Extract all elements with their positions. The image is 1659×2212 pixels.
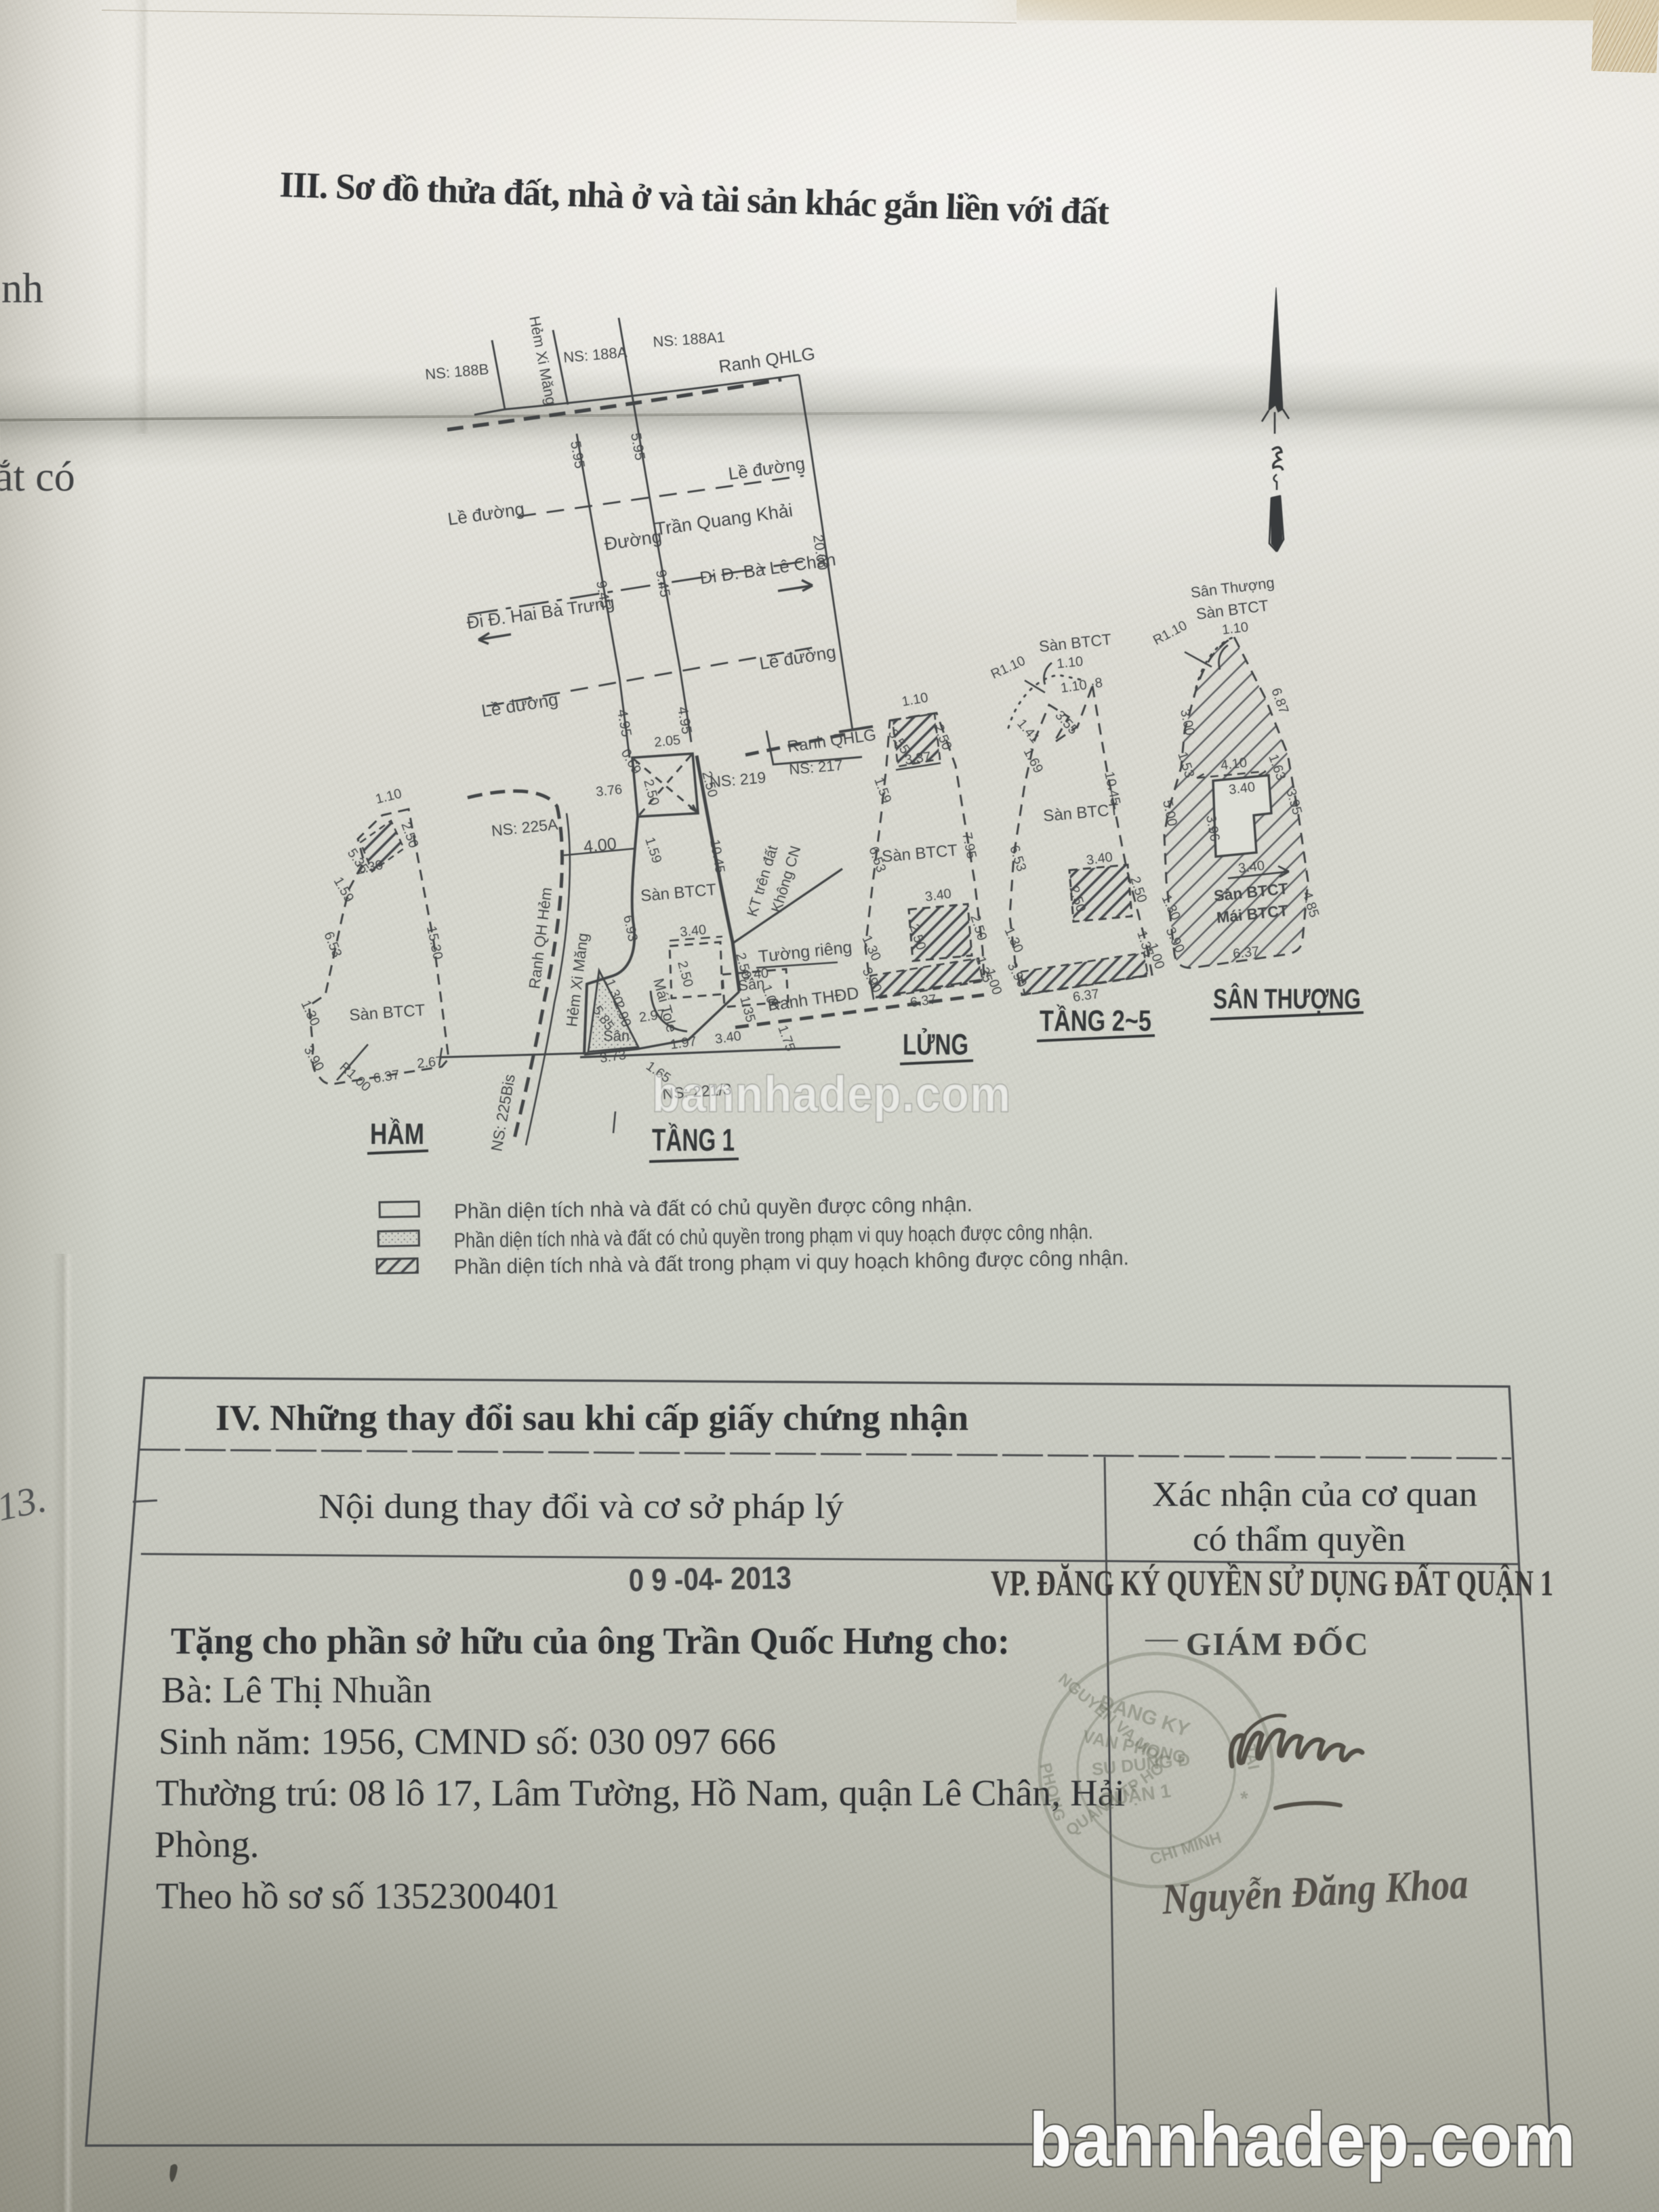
svg-text:Theo hồ sơ số 1352300401: Theo hồ sơ số 1352300401 — [156, 1875, 560, 1917]
svg-text:Hẻm Xi Măng: Hẻm Xi Măng — [526, 314, 560, 407]
svg-text:2.05: 2.05 — [653, 733, 681, 750]
svg-text:0 9 -04- 2013: 0 9 -04- 2013 — [628, 1559, 792, 1598]
svg-text:VP. ĐĂNG KÝ QUYỀN SỬ DỤNG ĐẤT: VP. ĐĂNG KÝ QUYỀN SỬ DỤNG ĐẤT QUẬN 1 — [991, 1562, 1553, 1603]
svg-text:Ranh QHLG: Ranh QHLG — [786, 726, 878, 756]
svg-text:Sàn BTCT: Sàn BTCT — [881, 841, 958, 866]
svg-text:Bà: Lê Thị Nhuần: Bà: Lê Thị Nhuần — [161, 1669, 432, 1711]
svg-text:1.10: 1.10 — [1221, 619, 1249, 638]
svg-text:Xác nhận của cơ quan: Xác nhận của cơ quan — [1152, 1475, 1477, 1514]
svg-text:Thường trú: 08 lô 17, Lâm Tườn: Thường trú: 08 lô 17, Lâm Tường, Hồ Nam,… — [156, 1772, 1125, 1814]
svg-text:Nguyễn Đăng Khoa: Nguyễn Đăng Khoa — [1160, 1859, 1469, 1923]
svg-text:2.50: 2.50 — [674, 960, 695, 989]
svg-text:5.95: 5.95 — [567, 440, 588, 470]
svg-text:Lề đường: Lề đường — [758, 641, 837, 673]
svg-text:1.59: 1.59 — [642, 836, 664, 865]
svg-text:có thẩm quyền: có thẩm quyền — [1193, 1520, 1406, 1559]
svg-text:1.30: 1.30 — [1001, 925, 1025, 956]
svg-text:III. Sơ đồ thửa đất, nhà ở và: III. Sơ đồ thửa đất, nhà ở và tài sản kh… — [279, 164, 1110, 232]
svg-text:Đi Đ. Hai Bà Trưng: Đi Đ. Hai Bà Trưng — [466, 592, 616, 633]
svg-text:NS: 225A: NS: 225A — [491, 815, 559, 840]
svg-text:1.00: 1.00 — [982, 967, 1004, 997]
svg-text:1.59: 1.59 — [331, 875, 357, 905]
svg-text:4.10: 4.10 — [1220, 755, 1248, 773]
svg-text:NS: 225Bis: NS: 225Bis — [487, 1073, 518, 1153]
svg-text:1.00: 1.00 — [1145, 941, 1167, 971]
svg-text:Sàn BTCT: Sàn BTCT — [1195, 596, 1269, 623]
svg-text:9.45: 9.45 — [653, 569, 673, 598]
svg-text:nh: nh — [1, 266, 43, 312]
svg-text:6.53: 6.53 — [321, 930, 344, 960]
svg-text:6.37: 6.37 — [909, 992, 938, 1010]
svg-text:CHI MINH: CHI MINH — [1148, 1828, 1224, 1868]
svg-text:1.30: 1.30 — [298, 998, 322, 1029]
svg-text:Mái Tole: Mái Tole — [650, 977, 680, 1034]
svg-text:4.95: 4.95 — [674, 705, 695, 735]
svg-text:GIÁM ĐỐC: GIÁM ĐỐC — [1186, 1625, 1370, 1662]
svg-text:—: — — [1145, 1620, 1179, 1656]
svg-text:Phòng.: Phòng. — [155, 1824, 259, 1865]
svg-text:Trần Quang Khải: Trần Quang Khải — [654, 500, 794, 539]
svg-text:TẦNG 2~5: TẦNG 2~5 — [1040, 1004, 1151, 1038]
svg-text:3.76: 3.76 — [595, 782, 623, 800]
svg-text:SÂN THƯỢNG: SÂN THƯỢNG — [1213, 982, 1361, 1015]
svg-text:4.95: 4.95 — [614, 708, 634, 738]
svg-text:3.40: 3.40 — [1086, 850, 1114, 868]
svg-text:*: * — [1240, 1788, 1248, 1810]
svg-text:5.95: 5.95 — [628, 432, 648, 462]
svg-text:ắt có: ắt có — [0, 454, 75, 500]
svg-text:bannhadep.com: bannhadep.com — [652, 1066, 1011, 1122]
svg-text:6.53: 6.53 — [1006, 844, 1029, 874]
svg-text:Phần diện tích nhà và đất có c: Phần diện tích nhà và đất có chủ quyền đ… — [454, 1192, 972, 1223]
svg-text:2.67: 2.67 — [416, 1054, 444, 1071]
svg-text:1.69: 1.69 — [1021, 745, 1046, 776]
svg-text:LỬNG: LỬNG — [903, 1027, 968, 1061]
svg-text:3.40: 3.40 — [714, 1029, 743, 1047]
svg-text:6.37: 6.37 — [1232, 944, 1260, 962]
svg-text:NS: 188B: NS: 188B — [424, 361, 489, 383]
svg-text:TẦNG 1: TẦNG 1 — [652, 1122, 735, 1158]
svg-text:0.69: 0.69 — [618, 747, 644, 777]
svg-text:2.50: 2.50 — [967, 913, 989, 943]
svg-text:NS: 188A: NS: 188A — [562, 344, 628, 366]
svg-text:Lề đường: Lề đường — [727, 453, 806, 484]
svg-text:2.50: 2.50 — [640, 778, 661, 807]
svg-text:6.37: 6.37 — [1072, 987, 1101, 1005]
svg-text:Tường riêng: Tường riêng — [758, 938, 853, 966]
svg-text:Đường: Đường — [603, 526, 663, 554]
svg-text:IV. Những thay đổi sau khi cấp: IV. Những thay đổi sau khi cấp giấy chứn… — [216, 1397, 968, 1438]
svg-text:Ranh QHLG: Ranh QHLG — [718, 343, 817, 377]
svg-text:6.37: 6.37 — [372, 1067, 401, 1086]
svg-text:1.30: 1.30 — [859, 933, 883, 964]
svg-text:1.10: 1.10 — [901, 690, 929, 709]
svg-text:Sinh năm: 1956, CMND số: 030 0: Sinh năm: 1956, CMND số: 030 097 666 — [159, 1721, 776, 1762]
svg-text:3.40: 3.40 — [1228, 779, 1256, 798]
svg-text:13.: 13. — [0, 1476, 50, 1530]
svg-text:1.97: 1.97 — [670, 1034, 698, 1052]
svg-text:R1.00: R1.00 — [337, 1059, 373, 1094]
svg-text:Sàn BTCT: Sàn BTCT — [349, 1001, 426, 1025]
svg-text:R1.10: R1.10 — [989, 653, 1028, 682]
svg-text:NS: 219: NS: 219 — [709, 769, 766, 791]
svg-text:Ranh THĐD: Ranh THĐD — [766, 983, 860, 1015]
svg-text:1.41: 1.41 — [1014, 716, 1042, 746]
svg-text:3.40: 3.40 — [924, 886, 953, 905]
svg-text:HẦM: HẦM — [370, 1117, 424, 1151]
svg-text:3.55: 3.55 — [1052, 708, 1080, 738]
svg-text:1.10: 1.10 — [1056, 654, 1084, 672]
svg-text:6.93: 6.93 — [620, 914, 640, 943]
svg-text:3.40: 3.40 — [679, 922, 707, 940]
svg-text:bannhadep.com: bannhadep.com — [1029, 2097, 1576, 2182]
svg-text:3.40: 3.40 — [741, 966, 769, 983]
svg-text:Sàn BTCT: Sàn BTCT — [1042, 800, 1120, 825]
svg-text:Nội dung thay đổi và cơ sở phá: Nội dung thay đổi và cơ sở pháp lý — [319, 1488, 844, 1526]
svg-text:Lề đường: Lề đường — [447, 498, 526, 529]
svg-text:Hẻm Xi Măng: Hẻm Xi Măng — [562, 932, 592, 1027]
svg-text:R1.10: R1.10 — [1151, 618, 1189, 648]
svg-text:Sàn BTCT: Sàn BTCT — [1038, 630, 1113, 655]
svg-text:7.95: 7.95 — [959, 831, 979, 860]
svg-text:3.73: 3.73 — [599, 1048, 628, 1066]
svg-text:10.45: 10.45 — [707, 838, 727, 874]
svg-text:Sân: Sân — [603, 1027, 630, 1044]
svg-text:2.50: 2.50 — [1127, 875, 1149, 905]
svg-text:15.30: 15.30 — [424, 924, 445, 961]
svg-text:3.90: 3.90 — [301, 1044, 327, 1074]
svg-text:1.10 ·8: 1.10 ·8 — [1060, 675, 1104, 695]
svg-text:1.35: 1.35 — [737, 995, 758, 1024]
svg-text:Sàn BTCT: Sàn BTCT — [640, 880, 717, 905]
svg-text:Lề đường: Lề đường — [480, 689, 559, 720]
svg-text:1.10: 1.10 — [374, 786, 403, 807]
svg-text:Tặng cho phần sở hữu của ông T: Tặng cho phần sở hữu của ông Trần Quốc H… — [171, 1620, 1010, 1662]
svg-text:1.59: 1.59 — [871, 775, 894, 805]
svg-text:3.40: 3.40 — [1237, 858, 1265, 876]
svg-text:NS: 188A1: NS: 188A1 — [653, 329, 726, 350]
svg-text:NS: 217: NS: 217 — [788, 756, 843, 778]
